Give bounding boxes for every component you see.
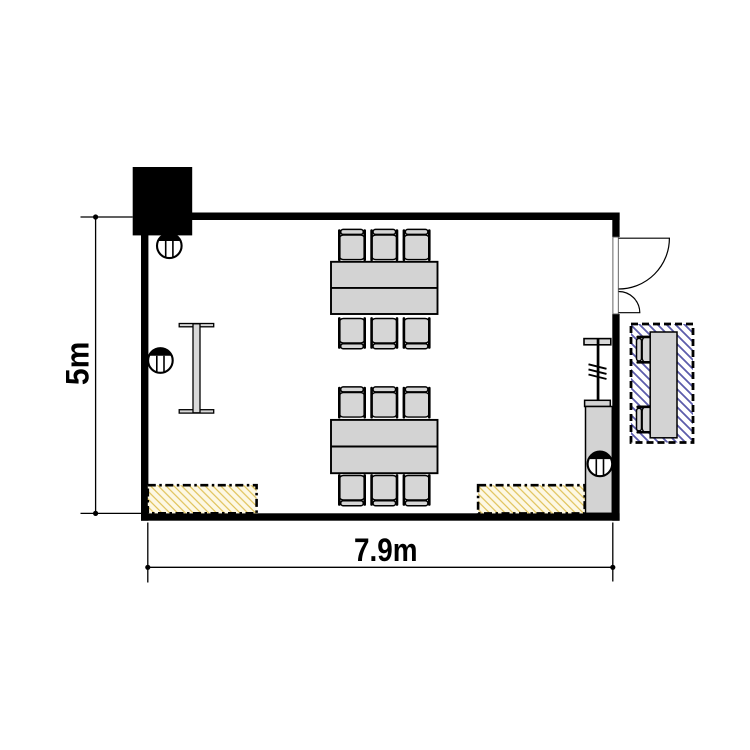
svg-text:5m: 5m <box>60 342 96 386</box>
svg-text:7.9m: 7.9m <box>354 532 418 568</box>
